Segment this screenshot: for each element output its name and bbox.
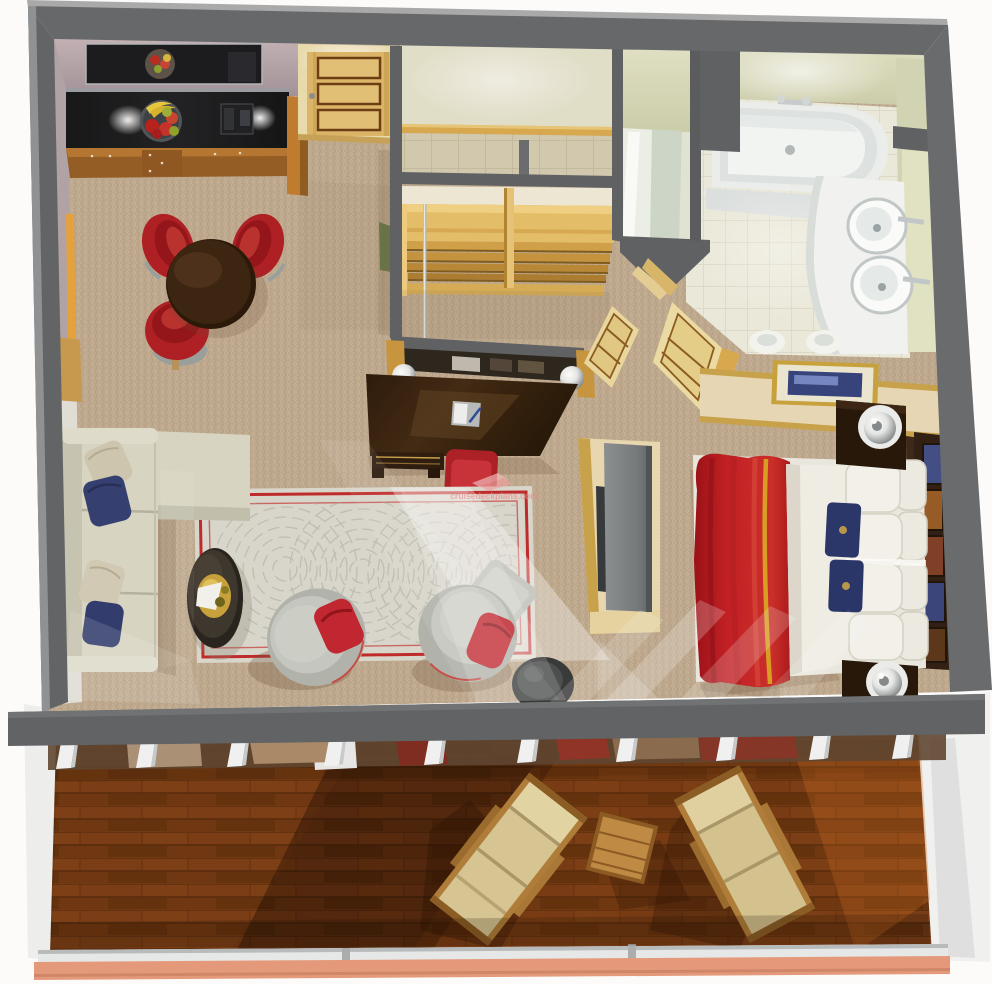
svg-text:cruisedeckplans.com: cruisedeckplans.com [450,491,538,501]
